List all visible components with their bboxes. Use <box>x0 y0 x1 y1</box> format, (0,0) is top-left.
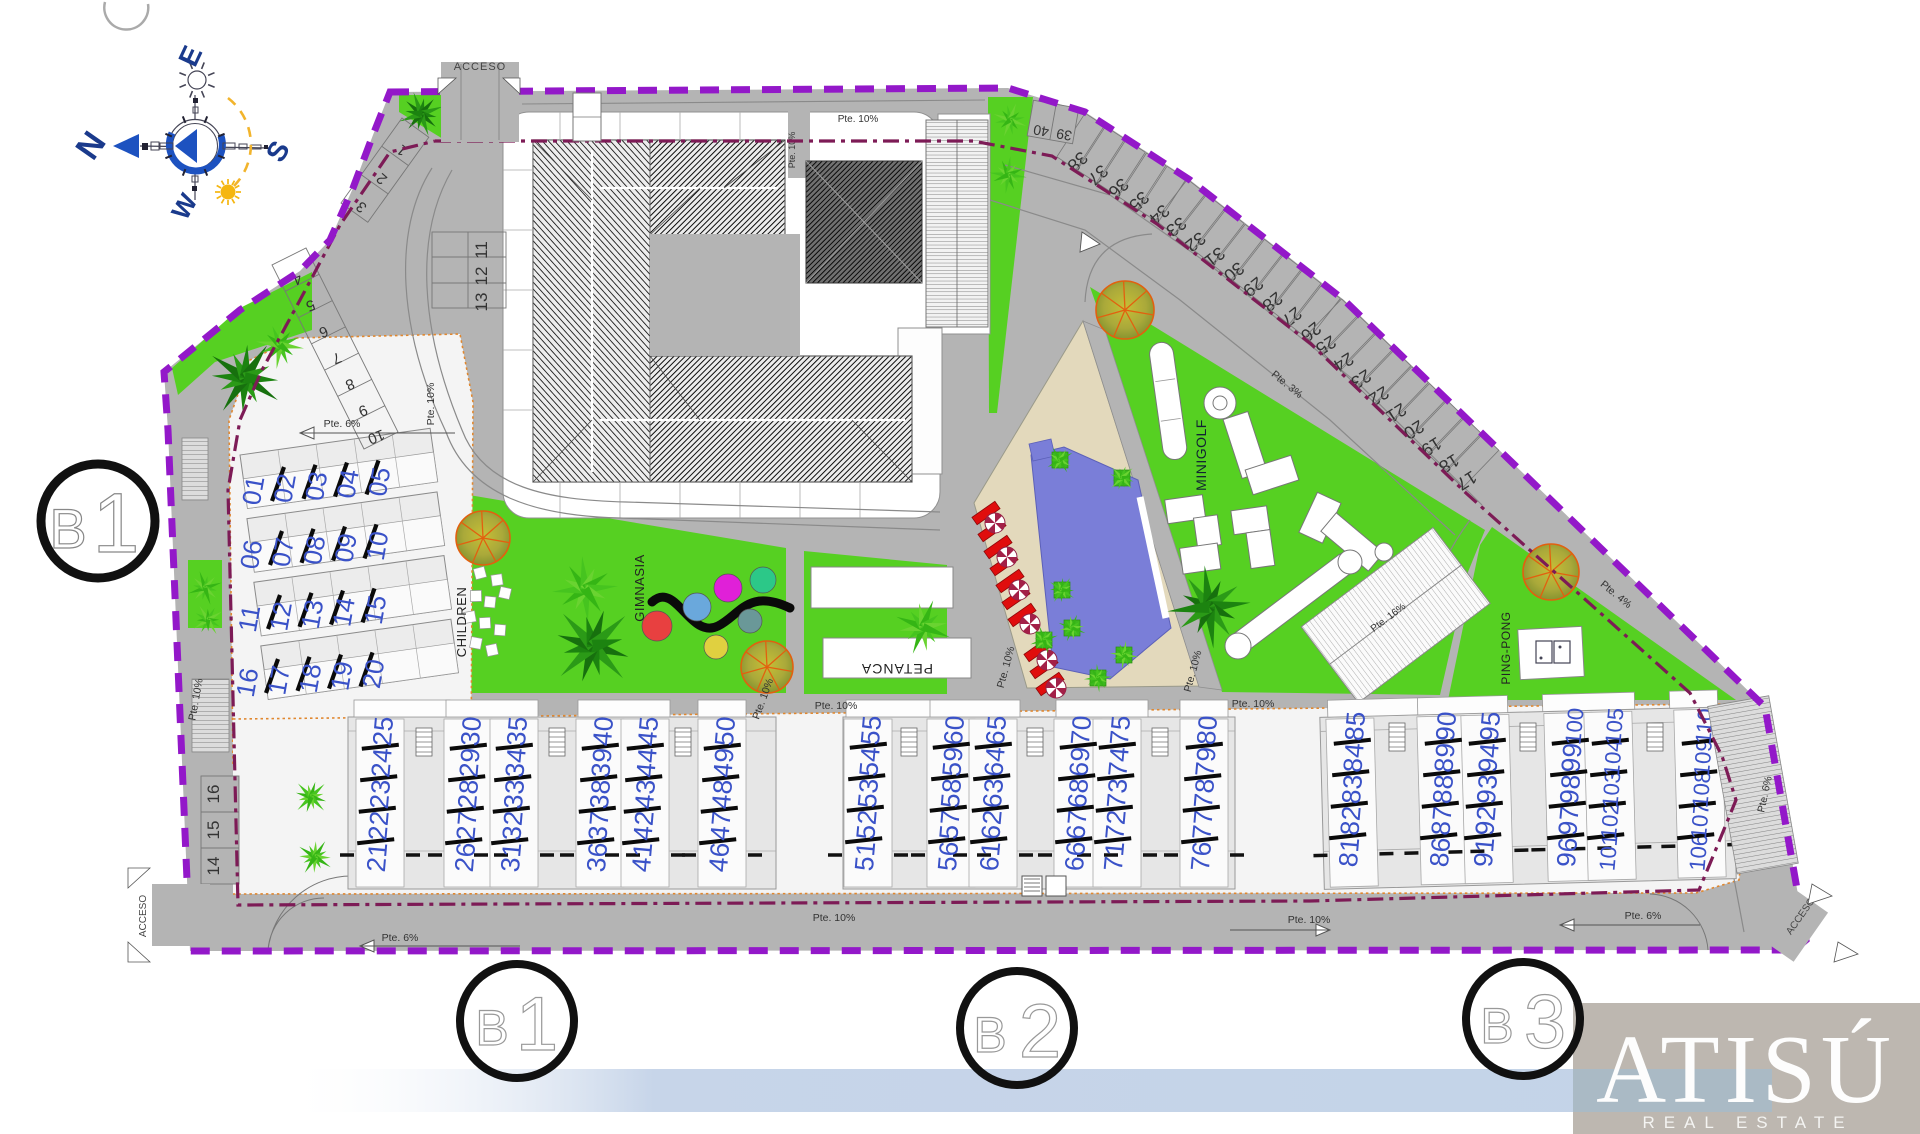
svg-text:Pte. 10%: Pte. 10% <box>838 114 879 125</box>
svg-text:15: 15 <box>358 593 393 627</box>
svg-text:13: 13 <box>295 597 330 631</box>
svg-text:85: 85 <box>1339 710 1371 742</box>
svg-text:65: 65 <box>980 714 1012 746</box>
svg-text:98: 98 <box>1554 773 1586 805</box>
svg-text:16: 16 <box>230 666 265 700</box>
svg-text:05: 05 <box>362 465 397 499</box>
svg-text:26: 26 <box>449 841 481 873</box>
svg-text:48: 48 <box>706 778 738 810</box>
svg-text:03: 03 <box>299 469 334 503</box>
svg-text:61: 61 <box>974 840 1006 872</box>
svg-text:06: 06 <box>234 538 269 572</box>
svg-text:Pte. 6%: Pte. 6% <box>382 932 419 944</box>
svg-text:ACCESO: ACCESO <box>454 61 506 73</box>
svg-text:34: 34 <box>499 747 531 779</box>
svg-text:16: 16 <box>204 785 223 804</box>
svg-text:69: 69 <box>1063 746 1095 778</box>
svg-text:17: 17 <box>261 663 296 697</box>
svg-text:82: 82 <box>1334 805 1366 837</box>
svg-text:63: 63 <box>977 777 1009 809</box>
svg-text:52: 52 <box>850 809 882 841</box>
svg-text:ATISÚ: ATISÚ <box>1596 1016 1896 1123</box>
svg-text:47: 47 <box>704 810 736 842</box>
svg-text:PETANCA: PETANCA <box>861 661 933 677</box>
svg-text:10: 10 <box>360 529 395 563</box>
svg-text:3: 3 <box>1524 980 1566 1065</box>
svg-text:Pte. 10%: Pte. 10% <box>1288 914 1331 926</box>
svg-text:12: 12 <box>263 599 298 633</box>
svg-text:87: 87 <box>1425 805 1457 837</box>
svg-text:REAL ESTATE: REAL ESTATE <box>1642 1113 1853 1132</box>
svg-text:B: B <box>973 1007 1006 1063</box>
svg-text:54: 54 <box>853 746 885 778</box>
svg-text:39: 39 <box>585 747 617 779</box>
svg-text:79: 79 <box>1189 746 1221 778</box>
svg-text:40: 40 <box>1032 122 1050 140</box>
svg-text:23: 23 <box>364 778 396 810</box>
svg-text:02: 02 <box>267 471 302 505</box>
svg-text:44: 44 <box>630 747 662 779</box>
svg-text:76: 76 <box>1185 840 1217 872</box>
svg-text:105: 105 <box>1600 707 1628 746</box>
svg-text:74: 74 <box>1102 746 1134 778</box>
svg-text:PING-PONG: PING-PONG <box>1499 611 1513 684</box>
svg-text:25: 25 <box>367 715 399 747</box>
svg-text:50: 50 <box>709 715 741 747</box>
svg-text:53: 53 <box>852 777 884 809</box>
svg-text:83: 83 <box>1336 773 1368 805</box>
svg-text:39: 39 <box>1055 126 1073 144</box>
svg-text:77: 77 <box>1186 809 1218 841</box>
svg-text:59: 59 <box>936 746 968 778</box>
svg-text:43: 43 <box>629 778 661 810</box>
svg-text:80: 80 <box>1191 714 1223 746</box>
svg-text:CHILDREN: CHILDREN <box>454 587 469 657</box>
svg-text:Pte. 10%: Pte. 10% <box>425 383 437 426</box>
svg-text:Pte. 6%: Pte. 6% <box>1625 910 1662 922</box>
svg-text:58: 58 <box>935 777 967 809</box>
svg-text:92: 92 <box>1469 805 1501 837</box>
svg-text:37: 37 <box>582 810 614 842</box>
svg-text:91: 91 <box>1468 836 1500 868</box>
svg-text:67: 67 <box>1060 809 1092 841</box>
svg-text:66: 66 <box>1059 840 1091 872</box>
svg-text:55: 55 <box>855 714 887 746</box>
svg-text:24: 24 <box>365 747 397 779</box>
svg-text:78: 78 <box>1188 777 1220 809</box>
svg-text:62: 62 <box>975 809 1007 841</box>
svg-text:51: 51 <box>849 840 881 872</box>
svg-text:29: 29 <box>453 747 485 779</box>
svg-text:07: 07 <box>265 535 300 569</box>
svg-text:04: 04 <box>330 467 365 501</box>
svg-text:73: 73 <box>1101 777 1133 809</box>
svg-text:68: 68 <box>1062 777 1094 809</box>
svg-text:Pte. 10%: Pte. 10% <box>815 700 858 712</box>
svg-text:93: 93 <box>1471 773 1503 805</box>
svg-text:GIMNASIA: GIMNASIA <box>632 554 647 622</box>
svg-text:36: 36 <box>581 841 613 873</box>
svg-text:88: 88 <box>1427 773 1459 805</box>
svg-text:28: 28 <box>452 778 484 810</box>
svg-text:Pte. 6%: Pte. 6% <box>324 418 361 430</box>
svg-text:35: 35 <box>501 715 533 747</box>
svg-text:12: 12 <box>472 267 491 286</box>
svg-text:33: 33 <box>498 778 530 810</box>
svg-text:21: 21 <box>361 841 393 873</box>
svg-text:32: 32 <box>496 810 528 842</box>
svg-text:01: 01 <box>236 474 271 508</box>
svg-text:49: 49 <box>707 747 739 779</box>
svg-text:14: 14 <box>326 595 361 629</box>
svg-text:ACCESO: ACCESO <box>138 895 149 937</box>
svg-text:19: 19 <box>324 659 359 693</box>
svg-text:45: 45 <box>632 715 664 747</box>
svg-text:Pte. 10%: Pte. 10% <box>1232 698 1275 710</box>
svg-text:38: 38 <box>584 778 616 810</box>
svg-text:100: 100 <box>1560 707 1588 746</box>
svg-text:42: 42 <box>627 810 659 842</box>
svg-text:89: 89 <box>1428 742 1460 774</box>
svg-text:95: 95 <box>1474 710 1506 742</box>
svg-text:40: 40 <box>587 715 619 747</box>
svg-text:11: 11 <box>232 603 266 635</box>
svg-text:30: 30 <box>455 715 487 747</box>
svg-text:2: 2 <box>1019 989 1061 1074</box>
svg-text:56: 56 <box>932 840 964 872</box>
svg-text:86: 86 <box>1424 836 1456 868</box>
svg-text:46: 46 <box>703 841 735 873</box>
svg-text:97: 97 <box>1552 805 1584 837</box>
svg-text:90: 90 <box>1430 710 1462 742</box>
svg-text:96: 96 <box>1551 836 1583 868</box>
svg-text:64: 64 <box>978 746 1010 778</box>
svg-text:27: 27 <box>450 810 482 842</box>
svg-text:81: 81 <box>1333 836 1365 868</box>
svg-text:14: 14 <box>204 857 223 876</box>
svg-text:MINIGOLF: MINIGOLF <box>1193 419 1209 491</box>
svg-text:57: 57 <box>933 809 965 841</box>
svg-text:71: 71 <box>1098 840 1130 872</box>
svg-text:75: 75 <box>1104 714 1136 746</box>
svg-text:13: 13 <box>472 293 491 312</box>
svg-text:31: 31 <box>495 841 527 873</box>
svg-text:94: 94 <box>1472 742 1504 774</box>
svg-text:B: B <box>49 497 86 560</box>
svg-text:15: 15 <box>204 821 223 840</box>
svg-text:60: 60 <box>938 714 970 746</box>
svg-text:22: 22 <box>362 810 394 842</box>
svg-text:Pte. 10%: Pte. 10% <box>787 132 797 169</box>
svg-text:20: 20 <box>356 657 391 691</box>
svg-text:Pte. 10%: Pte. 10% <box>813 912 856 924</box>
svg-text:72: 72 <box>1099 809 1131 841</box>
svg-text:1: 1 <box>516 982 558 1067</box>
svg-text:08: 08 <box>297 533 332 567</box>
svg-text:09: 09 <box>328 531 363 565</box>
svg-text:11: 11 <box>472 241 491 259</box>
svg-text:84: 84 <box>1337 742 1369 774</box>
svg-text:1: 1 <box>93 476 140 570</box>
svg-text:41: 41 <box>626 841 658 873</box>
svg-text:18: 18 <box>293 661 328 695</box>
svg-text:B: B <box>1480 998 1513 1054</box>
svg-text:70: 70 <box>1065 714 1097 746</box>
svg-text:B: B <box>475 1000 508 1056</box>
